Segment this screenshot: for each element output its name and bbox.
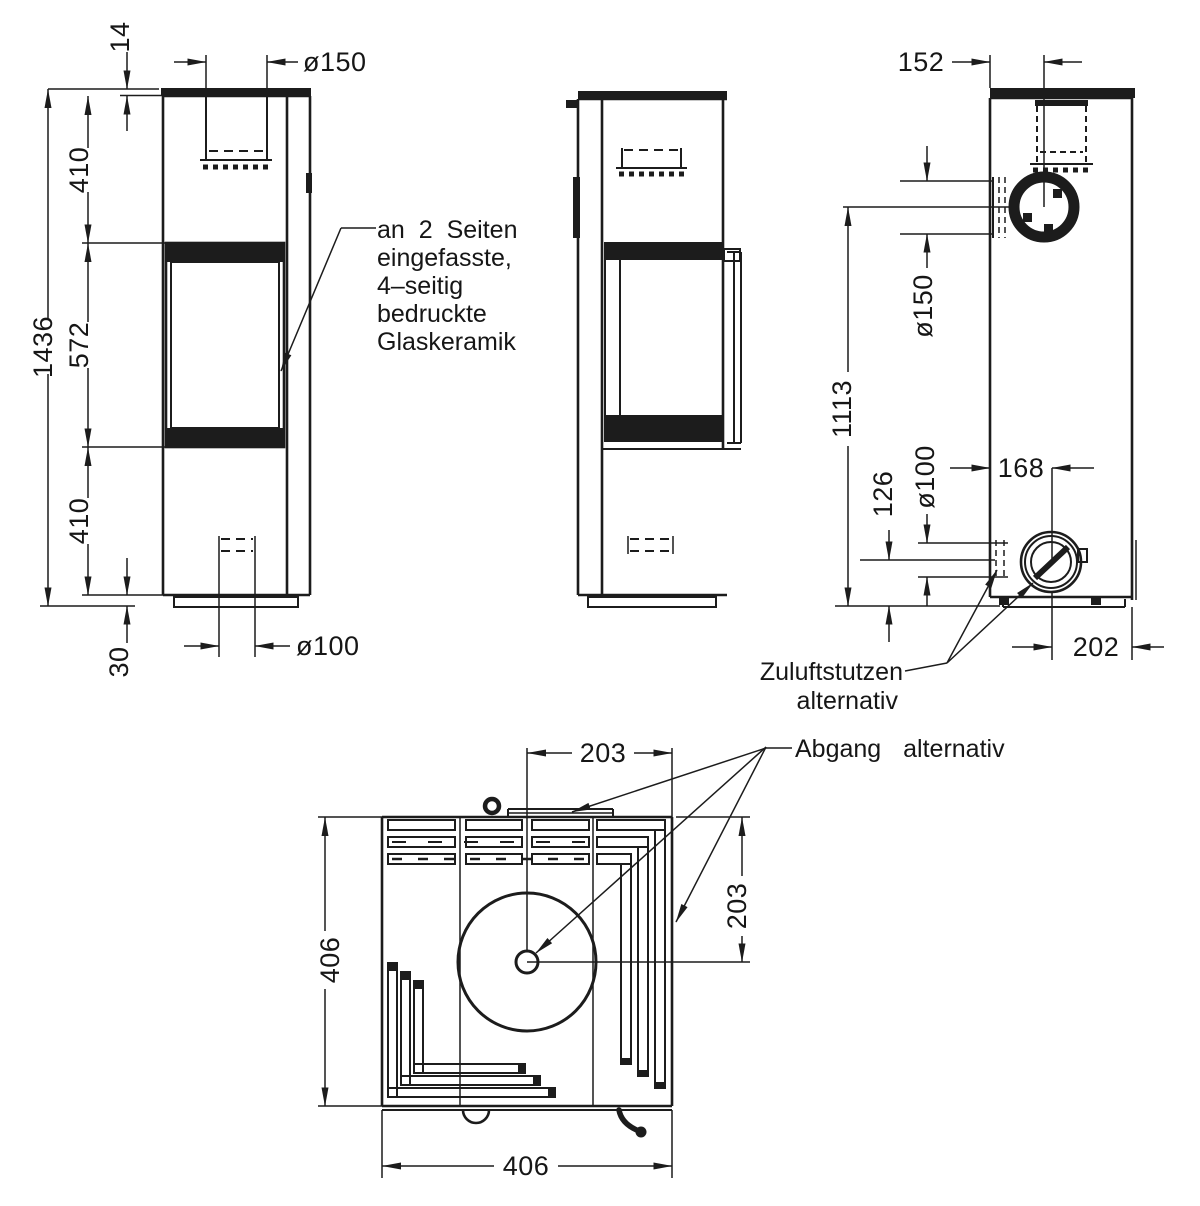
side-door-panel <box>727 252 741 443</box>
top-door-handle-knob <box>636 1127 647 1138</box>
rear-air-stub-hidden <box>996 540 1004 578</box>
top-corner-slats-right <box>597 820 665 1089</box>
dim-upper-section: 410 <box>64 147 94 194</box>
rear-flue-tab-1 <box>1053 189 1062 198</box>
glass-note-line5: Glaskeramik <box>377 328 516 356</box>
dim-air-center-height: 126 <box>868 471 898 518</box>
rear-flue-tab-3 <box>1044 224 1053 233</box>
dim-side-flue-diameter: ø150 <box>908 274 938 338</box>
side-view <box>566 91 741 607</box>
dim-total-height: 1436 <box>28 316 58 378</box>
rear-top-plate <box>990 88 1135 98</box>
dim-plinth-height: 30 <box>104 646 134 677</box>
front-body-outline <box>163 96 310 595</box>
side-air-stub-hidden <box>630 539 671 551</box>
zuluft-leader-arrow-1 <box>947 570 997 663</box>
front-door-frame-top <box>166 243 284 262</box>
zuluft-leader-stem <box>905 663 947 671</box>
dim-width: 406 <box>503 1151 550 1181</box>
dim-flue-from-center-right: 203 <box>580 738 627 768</box>
top-grille-slats <box>388 820 589 864</box>
dim-flue-from-rear: 203 <box>722 883 752 930</box>
dim-air-offset-left: 168 <box>998 453 1045 483</box>
top-control-knob <box>485 799 499 813</box>
zuluft-label-line1: Zuluftstutzen <box>760 658 903 686</box>
front-glass-pane <box>171 262 279 428</box>
front-plinth <box>174 597 298 607</box>
dim-flue-diameter: ø150 <box>303 47 367 77</box>
front-air-stub-hidden <box>221 539 253 551</box>
front-door-frame-bottom <box>166 428 284 447</box>
rear-flue-tab-2 <box>1023 213 1032 222</box>
zuluft-label-line2: alternativ <box>797 687 899 715</box>
side-rear-tab <box>566 100 578 108</box>
front-view: 14 ø150 410 572 410 1436 30 ø100 an 2 Se… <box>28 21 518 677</box>
glass-note-line1: an 2 Seiten <box>377 216 518 244</box>
front-door-window-frame <box>166 243 284 447</box>
dim-lower-section: 410 <box>64 498 94 545</box>
abgang-label: Abgang alternativ <box>795 735 1005 763</box>
side-door-hinge-block <box>724 249 740 261</box>
technical-drawing-canvas: 14 ø150 410 572 410 1436 30 ø100 an 2 Se… <box>0 0 1200 1206</box>
rear-body-outline <box>990 98 1132 600</box>
drawing-sheet: 14 ø150 410 572 410 1436 30 ø100 an 2 Se… <box>0 0 1200 1206</box>
rear-top-collar-cap <box>1035 100 1088 106</box>
glass-annotation: an 2 Seiten eingefasste, 4–seitig bedruc… <box>281 216 518 371</box>
dim-air-inlet-diameter: ø100 <box>296 631 360 661</box>
dim-glass-height: 572 <box>64 322 94 369</box>
side-door-frame-top <box>605 242 724 260</box>
dim-flue-offset: 152 <box>898 47 945 77</box>
dim-air-offset-right: 202 <box>1073 632 1120 662</box>
zuluft-annotation: Zuluftstutzen alternativ <box>760 570 1033 715</box>
top-door-handle <box>619 1110 639 1131</box>
dim-depth: 406 <box>315 937 345 984</box>
side-plinth <box>588 597 716 607</box>
glass-note-line3: 4–seitig <box>377 272 463 300</box>
glass-note-line4: bedruckte <box>377 300 487 328</box>
rear-extension-lines <box>835 55 1132 660</box>
top-door-hinge <box>463 1110 489 1123</box>
dim-rear-air-diameter: ø100 <box>910 445 940 509</box>
top-view: 203 203 406 406 <box>315 738 752 1181</box>
rear-plinth <box>1003 599 1125 607</box>
glass-note-line2: eingefasste, <box>377 244 512 272</box>
side-door-frame-lines <box>605 242 620 442</box>
dim-top-plate: 14 <box>105 21 135 52</box>
dim-flue-center-height: 1113 <box>827 380 857 438</box>
side-door-frame-bottom <box>605 415 724 442</box>
